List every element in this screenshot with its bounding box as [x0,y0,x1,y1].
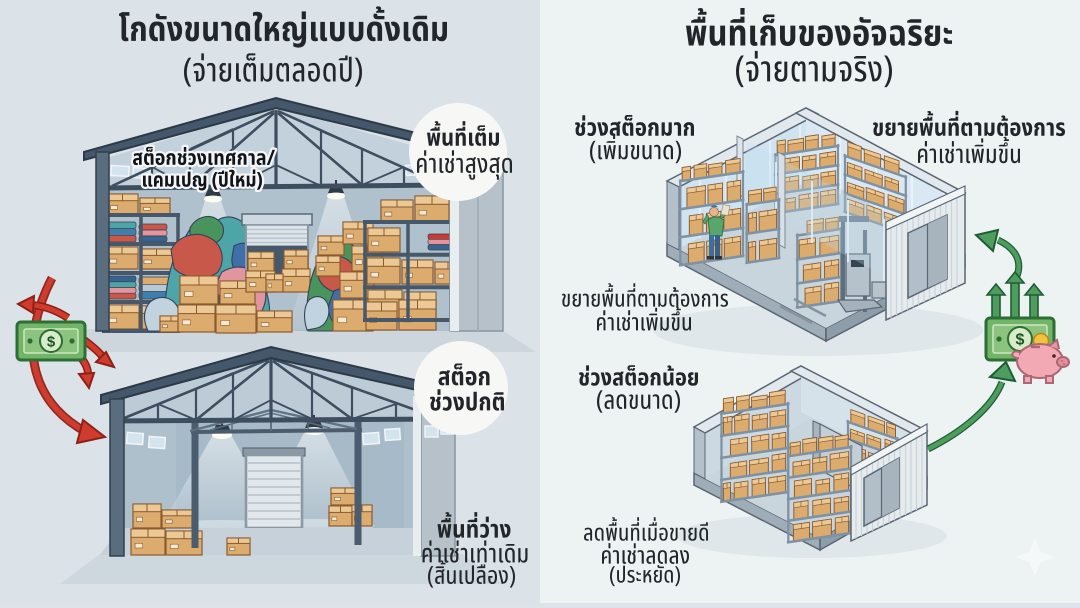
svg-text:$: $ [1016,332,1025,349]
svg-text:$: $ [47,334,56,351]
